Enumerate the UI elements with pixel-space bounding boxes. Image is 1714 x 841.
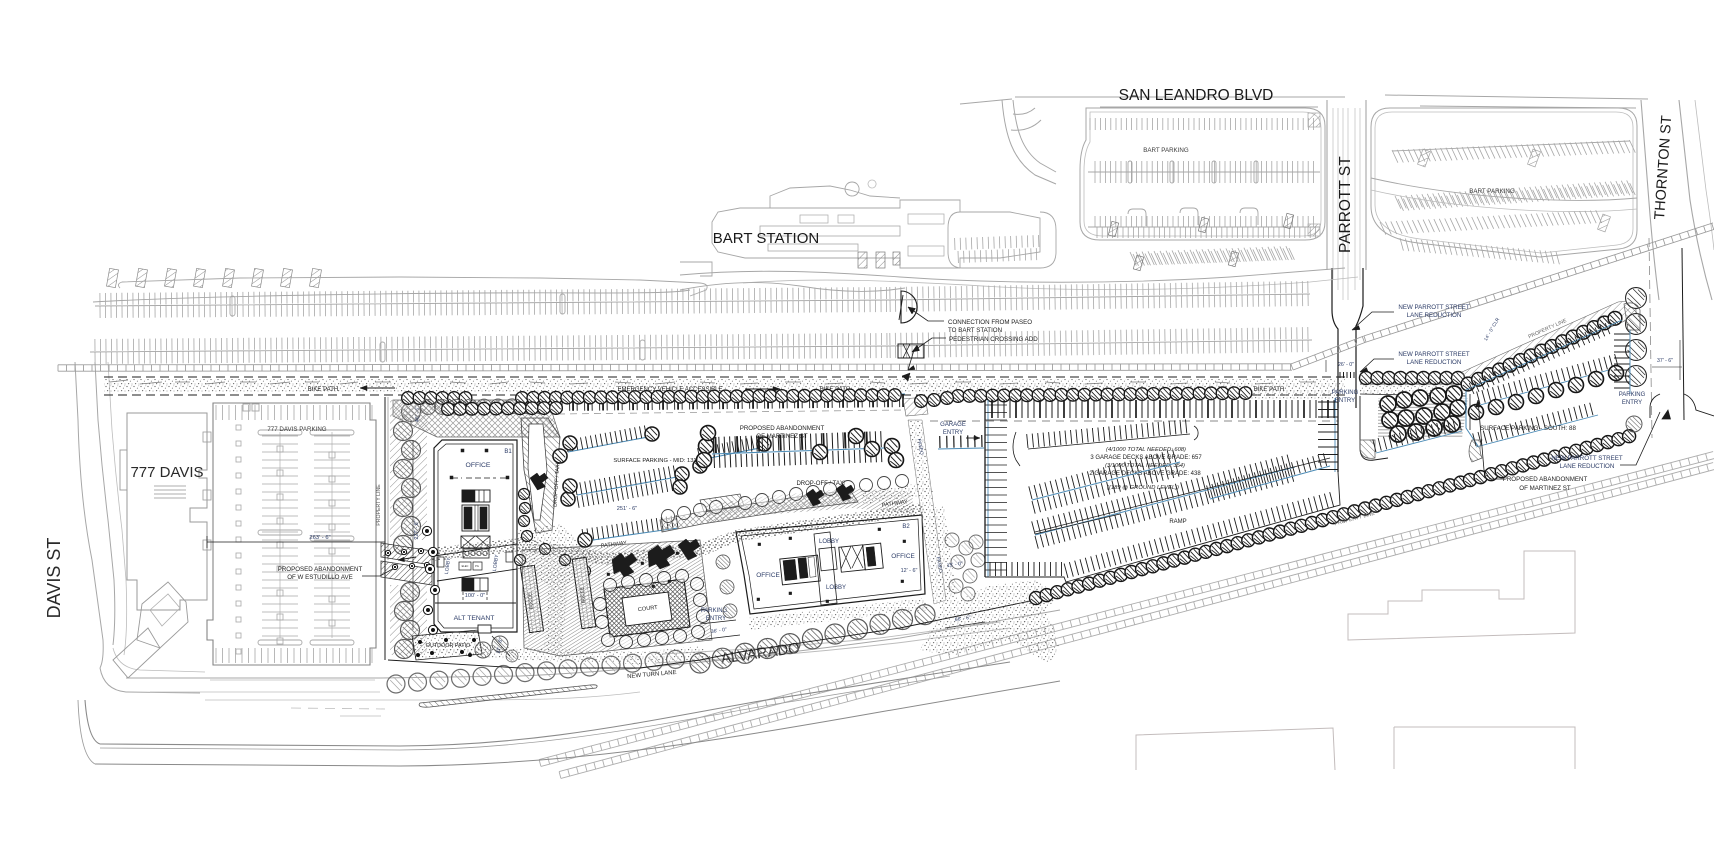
svg-text:100' - 0": 100' - 0" (465, 593, 485, 599)
svg-text:PROPOSED ABANDONMENT: PROPOSED ABANDONMENT (740, 425, 825, 432)
svg-text:BART PARKING: BART PARKING (1143, 147, 1189, 154)
svg-text:OUTDOOR PATIO: OUTDOOR PATIO (426, 643, 470, 649)
svg-text:TO BART STATION: TO BART STATION (948, 327, 1002, 334)
svg-text:37' - 6": 37' - 6" (1657, 358, 1673, 364)
svg-text:2 GARAGE DECKS ABOVE GRADE: 4: 2 GARAGE DECKS ABOVE GRADE: 438 (1089, 471, 1201, 477)
svg-text:OF W ESTUDILLO AVE: OF W ESTUDILLO AVE (287, 574, 353, 581)
svg-text:OFFICE: OFFICE (756, 572, 779, 579)
svg-text:PG: PG (475, 564, 479, 568)
svg-text:GARAGE: GARAGE (940, 422, 966, 428)
svg-text:263' - 6": 263' - 6" (309, 535, 330, 541)
svg-text:PROPOSED ABANDONMENT: PROPOSED ABANDONMENT (278, 566, 363, 573)
svg-text:SAN LEANDRO BLVD: SAN LEANDRO BLVD (1119, 87, 1274, 104)
svg-text:26' - 0": 26' - 0" (1338, 362, 1354, 368)
svg-text:ALT TENANT: ALT TENANT (454, 615, 495, 622)
svg-text:PARROTT ST: PARROTT ST (1337, 156, 1354, 253)
svg-text:PARKING: PARKING (1332, 390, 1359, 396)
svg-text:LANE REDUCTION: LANE REDUCTION (1560, 463, 1615, 470)
svg-text:OF MARTINEZ ST: OF MARTINEZ ST (1519, 485, 1571, 492)
svg-text:ELEC: ELEC (462, 564, 469, 568)
svg-text:SURFACE PARKING - MID: 131: SURFACE PARKING - MID: 131 (613, 458, 696, 464)
svg-text:PROPERTY LINE: PROPERTY LINE (376, 484, 382, 526)
svg-text:CONNECTION FROM PASEO: CONNECTION FROM PASEO (948, 319, 1032, 326)
svg-text:SURFACE PARKING - SOUTH: 88: SURFACE PARKING - SOUTH: 88 (1480, 425, 1576, 432)
svg-text:PEDESTRIAN CROSSING ADD: PEDESTRIAN CROSSING ADD (949, 336, 1038, 343)
svg-text:BART STATION: BART STATION (713, 230, 819, 247)
svg-text:(4/1000 TOTAL NEEDED: 608): (4/1000 TOTAL NEEDED: 608) (1106, 447, 1186, 453)
svg-text:((189 @ GROUND LEVEL)): ((189 @ GROUND LEVEL)) (1107, 485, 1179, 491)
svg-text:227' - 6": 227' - 6" (414, 520, 420, 539)
svg-text:ENTRY: ENTRY (1335, 398, 1355, 404)
svg-text:BIKE PATH: BIKE PATH (308, 387, 338, 393)
svg-text:B2: B2 (902, 524, 910, 530)
svg-text:PROPOSED ABANDONMENT: PROPOSED ABANDONMENT (1503, 476, 1588, 483)
svg-text:777 DAVIS: 777 DAVIS (130, 464, 203, 481)
svg-text:12' - 6": 12' - 6" (901, 568, 918, 574)
svg-text:OF MARTINEZ ST: OF MARTINEZ ST (756, 433, 808, 440)
svg-text:777 DAVIS PARKING: 777 DAVIS PARKING (267, 426, 326, 433)
svg-text:DAVIS ST: DAVIS ST (44, 538, 64, 619)
svg-text:LOBBY: LOBBY (819, 539, 839, 545)
svg-text:OFFICE: OFFICE (466, 462, 491, 469)
svg-text:251' - 6": 251' - 6" (617, 506, 637, 512)
svg-text:LANE REDUCTION: LANE REDUCTION (1407, 312, 1462, 319)
svg-text:BART PARKING: BART PARKING (1469, 188, 1515, 195)
svg-text:RAMP: RAMP (1169, 519, 1186, 525)
svg-text:ENTRY: ENTRY (943, 430, 963, 436)
svg-text:DROP-OFF / TAXI: DROP-OFF / TAXI (796, 481, 845, 487)
svg-text:ENTRY: ENTRY (1622, 400, 1642, 406)
svg-text:NEW PARROTT STREET: NEW PARROTT STREET (1551, 455, 1622, 462)
svg-text:NEW PARROTT STREET: NEW PARROTT STREET (1398, 304, 1469, 311)
svg-text:PARKING: PARKING (1619, 392, 1646, 398)
svg-text:NEW PARROTT STREET: NEW PARROTT STREET (1398, 351, 1469, 358)
svg-text:LANE REDUCTION: LANE REDUCTION (1407, 359, 1462, 366)
svg-text:OFFICE: OFFICE (891, 553, 914, 560)
svg-text:B1: B1 (504, 449, 512, 455)
